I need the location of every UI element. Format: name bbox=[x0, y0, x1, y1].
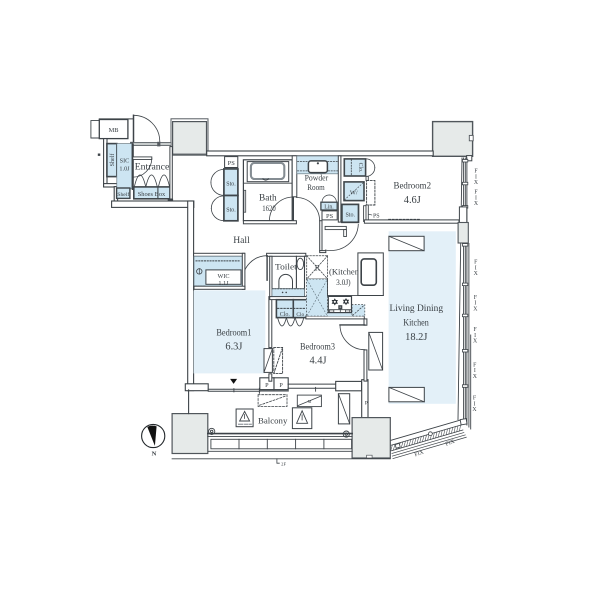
svg-text:Clo.: Clo. bbox=[280, 312, 291, 318]
svg-text:R: R bbox=[315, 263, 321, 272]
svg-text:Clo.: Clo. bbox=[357, 163, 363, 173]
svg-text:PS: PS bbox=[373, 213, 380, 219]
svg-text:WIC: WIC bbox=[217, 273, 229, 280]
svg-text:Sto.: Sto. bbox=[226, 208, 236, 214]
svg-text:P: P bbox=[365, 401, 368, 407]
svg-text:Bedroom1: Bedroom1 bbox=[216, 328, 251, 338]
svg-text:X: X bbox=[473, 374, 478, 380]
svg-text:X: X bbox=[474, 180, 479, 186]
svg-text:Bath: Bath bbox=[259, 193, 277, 203]
svg-text:(Kitchen: (Kitchen bbox=[329, 267, 359, 276]
svg-text:MB: MB bbox=[109, 127, 119, 134]
svg-text:Toilet: Toilet bbox=[275, 262, 297, 272]
svg-text:4.4J: 4.4J bbox=[309, 355, 326, 366]
svg-text:1.0J: 1.0J bbox=[119, 165, 130, 172]
svg-text:Sto.: Sto. bbox=[226, 181, 236, 187]
svg-text:Sto.: Sto. bbox=[345, 212, 355, 218]
svg-text:X: X bbox=[473, 307, 478, 313]
svg-text:Clo: Clo bbox=[296, 312, 304, 318]
svg-text:Shoes Box: Shoes Box bbox=[138, 191, 166, 198]
svg-text:PS: PS bbox=[228, 160, 236, 167]
svg-text:2F: 2F bbox=[281, 462, 286, 467]
svg-text:Kitchen: Kitchen bbox=[403, 318, 429, 329]
svg-text:W/: W/ bbox=[350, 189, 358, 196]
svg-text:FIX: FIX bbox=[414, 449, 426, 458]
svg-text:4.6J: 4.6J bbox=[404, 195, 421, 206]
svg-text:N: N bbox=[152, 451, 157, 458]
svg-text:P: P bbox=[265, 382, 269, 389]
svg-text:Bedroom2: Bedroom2 bbox=[394, 182, 432, 192]
svg-text:Shelf: Shelf bbox=[109, 154, 116, 167]
svg-text:Bedroom3: Bedroom3 bbox=[300, 343, 335, 353]
svg-text:X: X bbox=[472, 407, 477, 413]
svg-text:1620: 1620 bbox=[262, 204, 275, 213]
svg-text:M: M bbox=[308, 399, 312, 404]
svg-text:X: X bbox=[474, 271, 479, 277]
svg-text:3.0J): 3.0J) bbox=[336, 278, 351, 287]
svg-text:Living Dining: Living Dining bbox=[390, 303, 444, 314]
svg-text:FIX: FIX bbox=[445, 438, 457, 447]
svg-text:Balcony: Balcony bbox=[258, 415, 288, 425]
svg-text:PS: PS bbox=[326, 213, 334, 220]
svg-text:6.3J: 6.3J bbox=[225, 341, 242, 352]
svg-text:18.2J: 18.2J bbox=[405, 332, 427, 343]
svg-text:Lin.: Lin. bbox=[324, 205, 334, 211]
svg-text:P: P bbox=[279, 382, 283, 389]
svg-text:Entrance: Entrance bbox=[135, 163, 170, 173]
svg-text:Room: Room bbox=[307, 182, 325, 192]
svg-text:Hall: Hall bbox=[233, 235, 250, 246]
svg-text:X: X bbox=[473, 339, 478, 345]
svg-text:Shelf: Shelf bbox=[117, 191, 129, 198]
svg-text:X: X bbox=[474, 201, 479, 207]
svg-text:SIC: SIC bbox=[120, 157, 130, 164]
